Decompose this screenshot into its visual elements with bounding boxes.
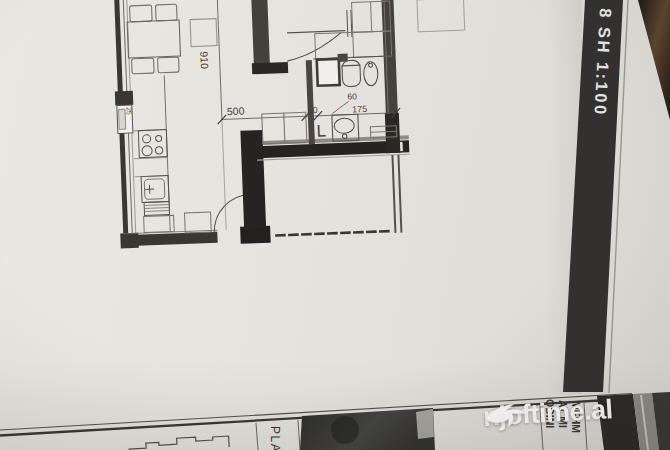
dim-175: 175 bbox=[352, 104, 367, 115]
dim-60: 60 bbox=[347, 91, 357, 101]
adjacent-room-outline bbox=[418, 0, 465, 32]
chair bbox=[132, 58, 155, 74]
kitchen bbox=[131, 74, 211, 235]
chair bbox=[158, 57, 180, 73]
window-wall-left bbox=[111, 0, 139, 248]
dim-910: 910 bbox=[198, 51, 211, 69]
right-wall bbox=[380, 0, 404, 233]
photographed-floor-plan-sheet: 25 bbox=[0, 0, 670, 450]
chair bbox=[156, 4, 178, 21]
toilet bbox=[342, 60, 361, 87]
dining-table bbox=[127, 20, 180, 58]
divider bbox=[298, 420, 300, 450]
titleblock-photo bbox=[300, 408, 435, 450]
dim-10: 10 bbox=[307, 105, 317, 115]
divider bbox=[256, 423, 258, 450]
key-plan-outline bbox=[129, 435, 230, 450]
wall-dim-label: 25 bbox=[125, 107, 132, 115]
photo-highlight bbox=[416, 409, 434, 439]
hall-wall bbox=[249, 0, 289, 74]
dim-500: 500 bbox=[227, 105, 245, 118]
floor-plan-group: 25 bbox=[111, 0, 473, 248]
duct-shaft bbox=[317, 59, 340, 86]
washing-machine bbox=[185, 212, 212, 233]
laundry-symbol: L bbox=[316, 121, 326, 140]
titleblock-vertical-title: PLA bbox=[268, 426, 282, 450]
plan-drawing: 25 bbox=[0, 0, 670, 450]
armchair bbox=[190, 19, 217, 47]
photo-shadow-blob bbox=[331, 416, 359, 444]
bidet bbox=[363, 61, 378, 86]
wood-table-corner bbox=[638, 0, 670, 120]
chair bbox=[130, 5, 153, 22]
hall-door bbox=[287, 31, 346, 61]
